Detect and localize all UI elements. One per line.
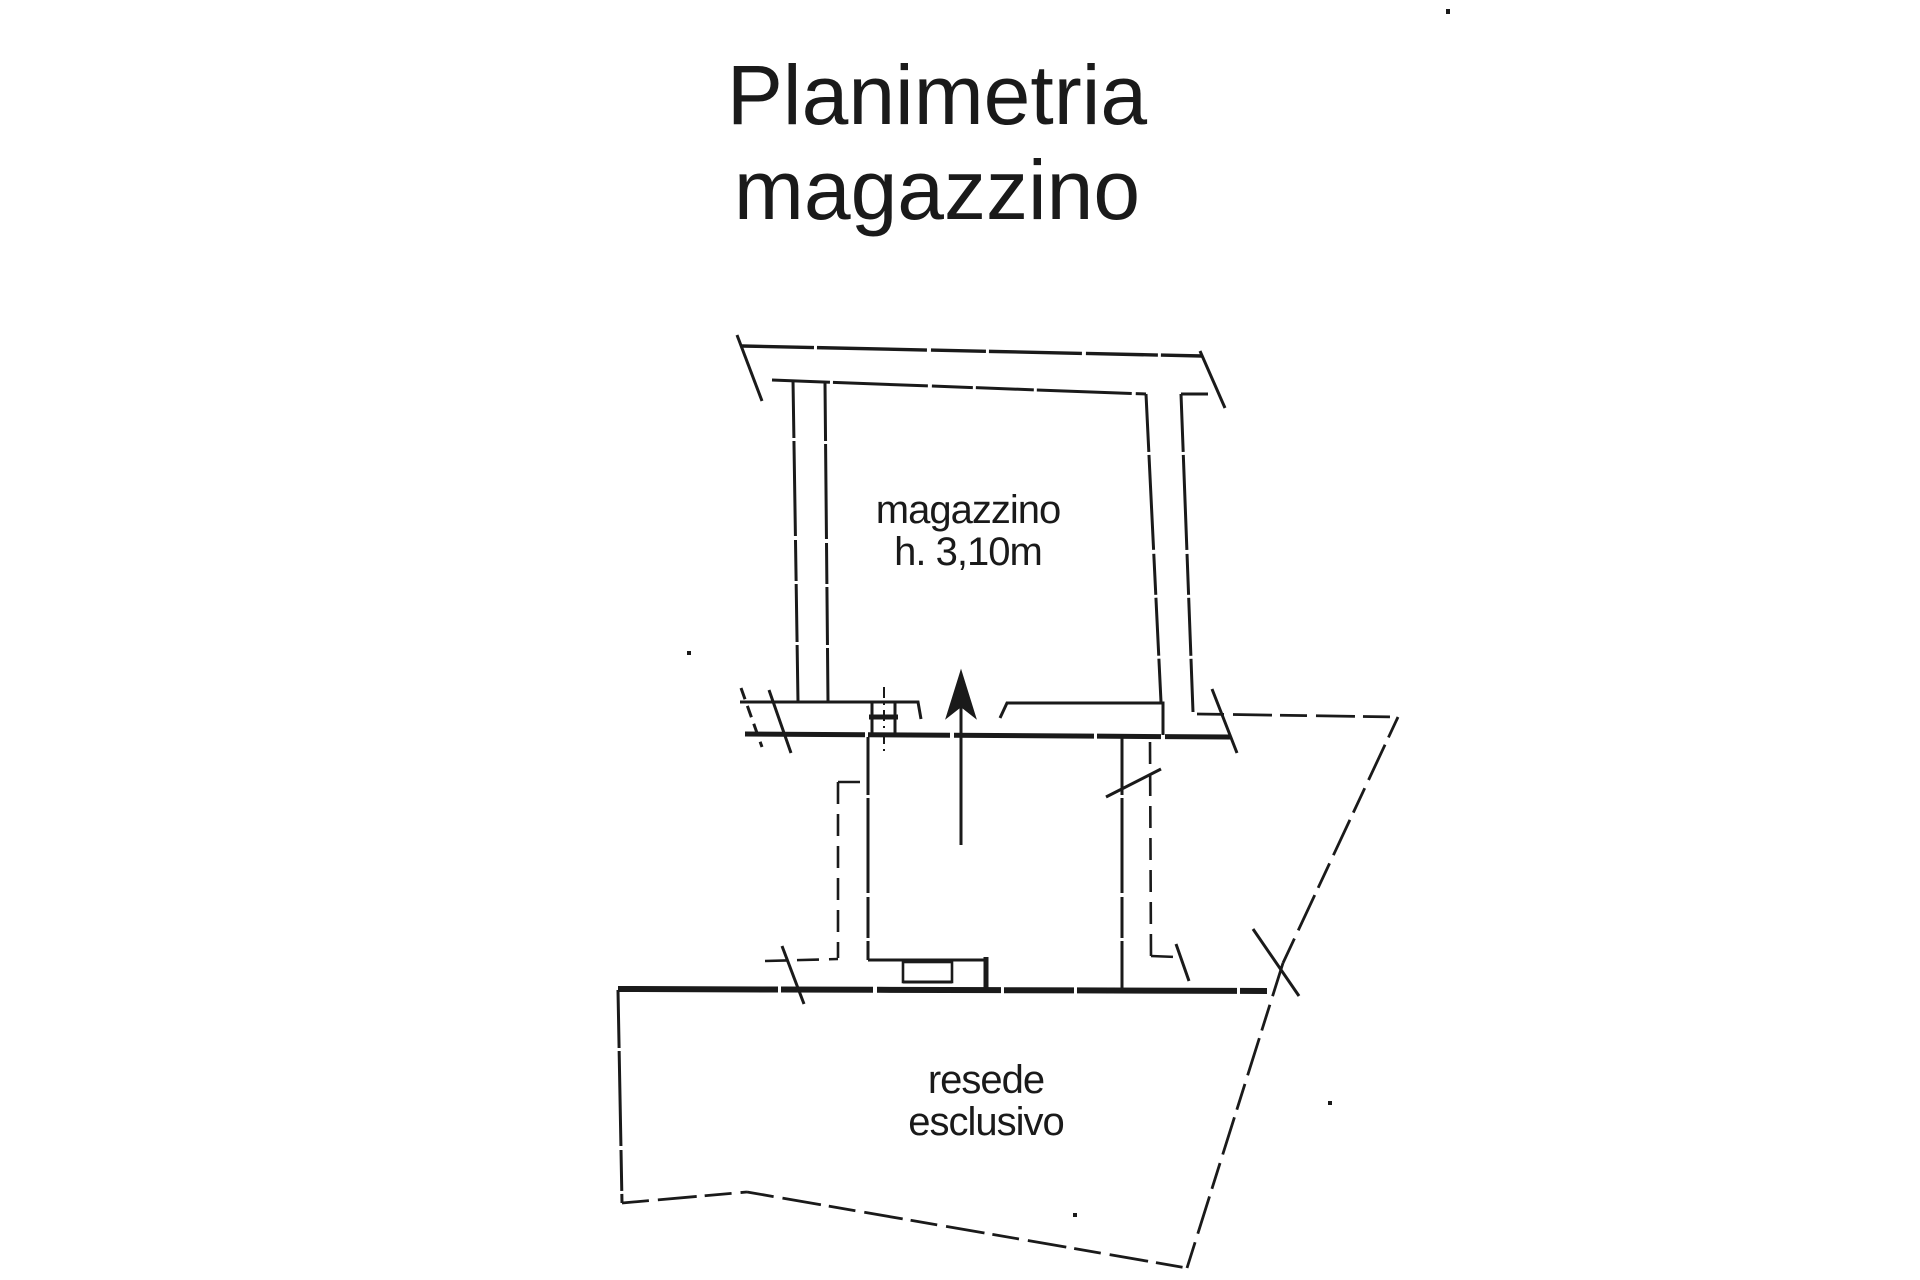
room-name: magazzino	[876, 489, 1060, 531]
room-label-magazzino: magazzinoh. 3,10m	[876, 489, 1060, 573]
page-title: Planimetriamagazzino	[387, 48, 1487, 238]
section-cut-ticks	[737, 335, 1299, 1004]
plan-sheet: Planimetriamagazzino magazzinoh. 3,10m r…	[0, 0, 1920, 1280]
threshold-step	[903, 962, 952, 982]
passage-walls	[765, 737, 1176, 991]
magazzino-door	[869, 687, 898, 753]
entrance-arrow-icon	[947, 672, 975, 845]
page-title-line1: Planimetria	[387, 48, 1487, 143]
page-title-line2: magazzino	[387, 143, 1487, 238]
yard-name-line2: esclusivo	[908, 1101, 1064, 1143]
yard-top-wall	[618, 989, 1267, 991]
yard-label-resede: resedeesclusivo	[908, 1059, 1064, 1143]
yard-name-line1: resede	[908, 1059, 1064, 1101]
room-height-note: h. 3,10m	[876, 531, 1060, 573]
